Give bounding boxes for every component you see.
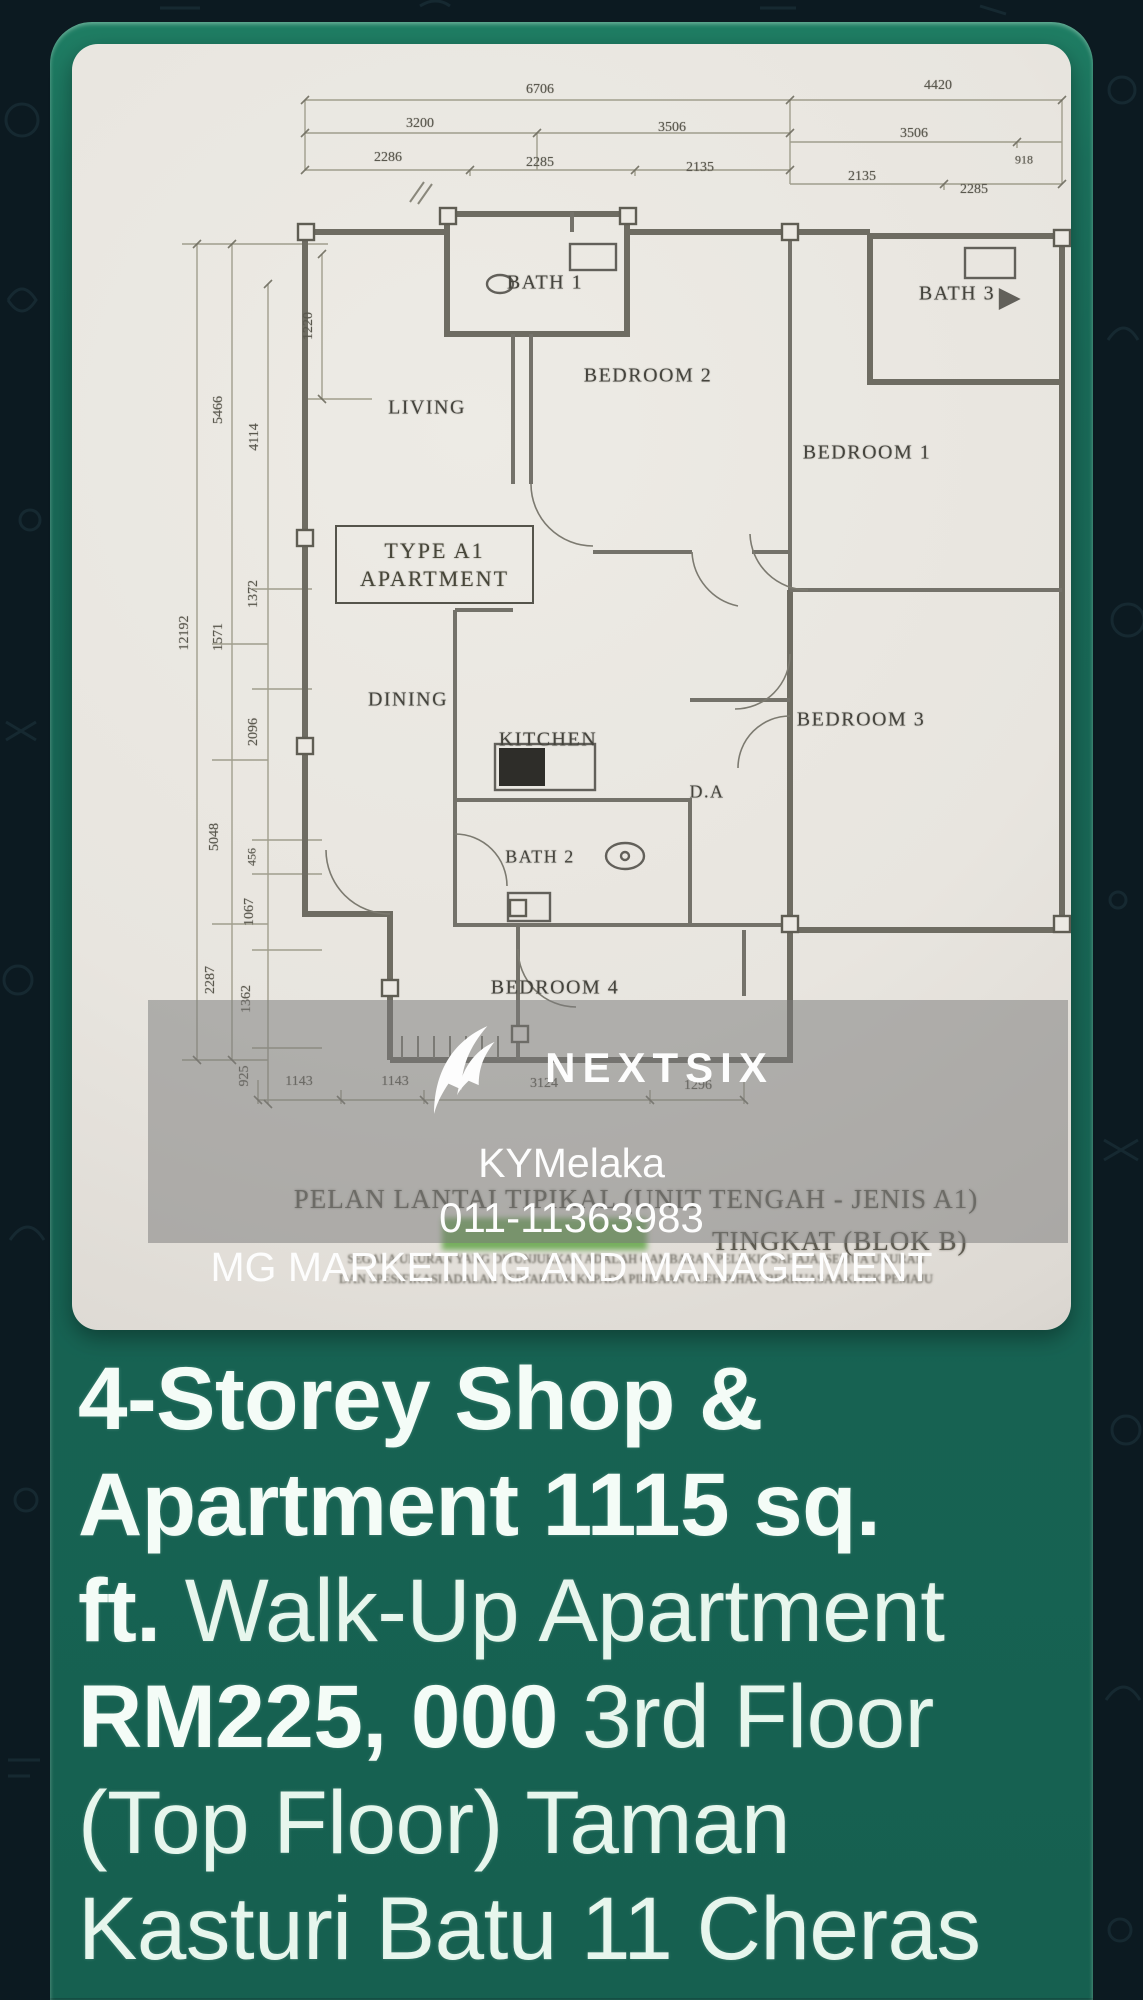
dim-top-2286: 2286 — [374, 150, 402, 166]
dim-top-3506b: 3506 — [900, 126, 928, 142]
dim-top-2285b: 2285 — [960, 182, 988, 198]
listing-line: Apartment 1115 sq. — [78, 1451, 1083, 1557]
stove-icon — [499, 748, 545, 786]
room-label-da: D.A — [690, 782, 725, 803]
dim-top-2285a: 2285 — [526, 155, 554, 171]
room-label-living: LIVING — [388, 397, 466, 420]
room-label-bedroom4: BEDROOM 4 — [491, 977, 620, 1000]
listing-text-bold: 4-Storey Shop & — [78, 1348, 763, 1448]
listing-price: RM225, 000 — [78, 1666, 558, 1766]
dim-left-456: 456 — [245, 848, 260, 866]
listing-text: 3rd Floor — [558, 1666, 934, 1766]
dim-top-2135a: 2135 — [686, 160, 714, 176]
agent-phone: 011-11363983 — [72, 1194, 1071, 1242]
dim-left-2287: 2287 — [203, 966, 219, 994]
listing-line: ft. Walk-Up Apartment — [78, 1557, 1083, 1663]
listing-line: (Top Floor) Taman — [78, 1769, 1083, 1875]
floor-plan-photo: BATH 1 BATH 3 BEDROOM 2 BEDROOM 1 LIVING… — [72, 44, 1071, 1330]
listing-text: Kasturi Batu 11 Cheras — [78, 1878, 981, 1978]
dim-top-918: 918 — [1015, 153, 1033, 168]
dim-top-3506a: 3506 — [658, 120, 686, 136]
whatsapp-status-listing-image: BATH 1 BATH 3 BEDROOM 2 BEDROOM 1 LIVING… — [0, 0, 1143, 2000]
listing-text-bold: ft. — [78, 1560, 161, 1660]
listing-text: (Top Floor) Taman — [78, 1772, 790, 1872]
listing-text-bold: Apartment 1115 sq. — [78, 1454, 880, 1554]
room-label-dining: DINING — [368, 689, 448, 712]
listing-line: Kasturi Batu 11 Cheras — [78, 1875, 1083, 1981]
dim-left-5048: 5048 — [207, 823, 223, 851]
dim-left-5466: 5466 — [211, 396, 227, 424]
dim-top-4420: 4420 — [924, 78, 952, 94]
dim-top-2135b: 2135 — [848, 169, 876, 185]
room-label-bedroom1: BEDROOM 1 — [803, 442, 932, 465]
agent-name: KYMelaka — [72, 1140, 1071, 1187]
dim-left-1067: 1067 — [242, 898, 258, 926]
listing-line: RM225, 000 3rd Floor — [78, 1663, 1083, 1769]
dim-top-3200: 3200 — [406, 116, 434, 132]
brand-name: NEXTSIX — [72, 1044, 1071, 1092]
dim-top-6706: 6706 — [526, 82, 554, 98]
unit-type-line2: APARTMENT — [360, 566, 509, 592]
dim-left-1372: 1372 — [246, 580, 262, 608]
room-label-bath1: BATH 1 — [507, 272, 583, 295]
dim-left-4114: 4114 — [247, 423, 263, 450]
room-label-bath3: BATH 3 — [919, 283, 995, 306]
unit-type-line1: TYPE A1 — [384, 538, 484, 564]
listing-line: 4-Storey Shop & — [78, 1345, 1083, 1451]
room-label-bedroom2: BEDROOM 2 — [584, 365, 713, 388]
room-label-bath2: BATH 2 — [505, 847, 575, 868]
dim-left-1571: 1571 — [211, 623, 227, 651]
room-label-kitchen: KITCHEN — [499, 729, 597, 752]
dim-left-12192: 12192 — [177, 616, 193, 651]
room-label-bedroom3: BEDROOM 3 — [797, 709, 926, 732]
agency-name: MG MARKETING AND MANAGEMENT — [72, 1244, 1071, 1291]
unit-type-box: TYPE A1 APARTMENT — [335, 525, 534, 604]
listing-description: 4-Storey Shop & Apartment 1115 sq. ft. W… — [78, 1345, 1083, 1981]
listing-text: Walk-Up Apartment — [161, 1560, 945, 1660]
dim-left-2096: 2096 — [246, 718, 262, 746]
dim-left-1220: 1220 — [301, 312, 317, 340]
